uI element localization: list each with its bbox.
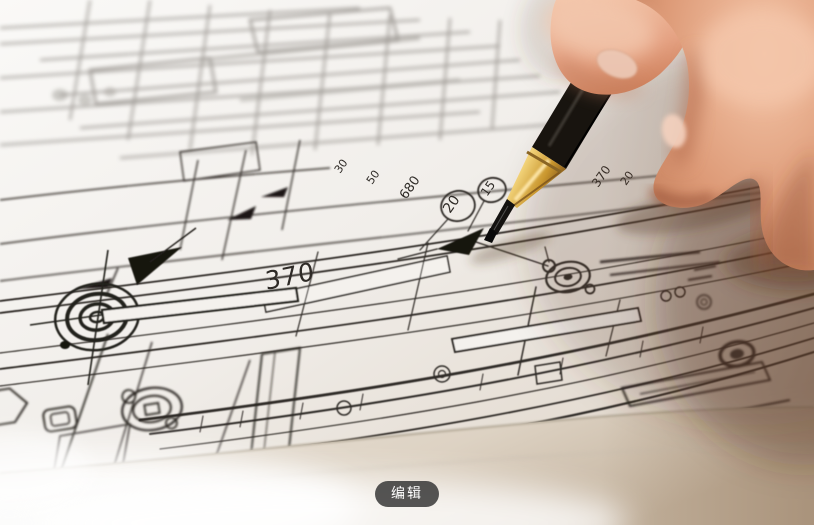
blueprint-photo: 370 30 50 680 20 15 370 20 xyxy=(0,0,814,525)
blueprint-photo-svg: 370 30 50 680 20 15 370 20 xyxy=(0,0,814,525)
edit-button[interactable]: 编辑 xyxy=(375,481,439,507)
